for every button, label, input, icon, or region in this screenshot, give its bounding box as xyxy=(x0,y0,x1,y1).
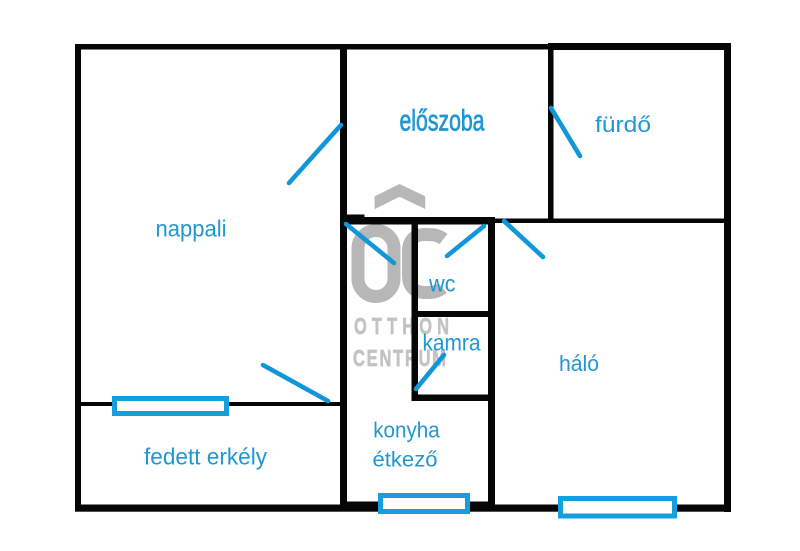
svg-text:kamra: kamra xyxy=(423,330,481,356)
svg-text:nappali: nappali xyxy=(156,216,227,242)
svg-text:fürdő: fürdő xyxy=(595,112,651,137)
svg-text:konyha: konyha xyxy=(373,418,440,443)
svg-text:előszoba: előszoba xyxy=(400,105,485,138)
svg-text:wc: wc xyxy=(428,271,455,297)
svg-text:fedett erkély: fedett erkély xyxy=(144,444,267,470)
svg-text:háló: háló xyxy=(559,351,599,376)
svg-text:étkező: étkező xyxy=(373,448,438,472)
